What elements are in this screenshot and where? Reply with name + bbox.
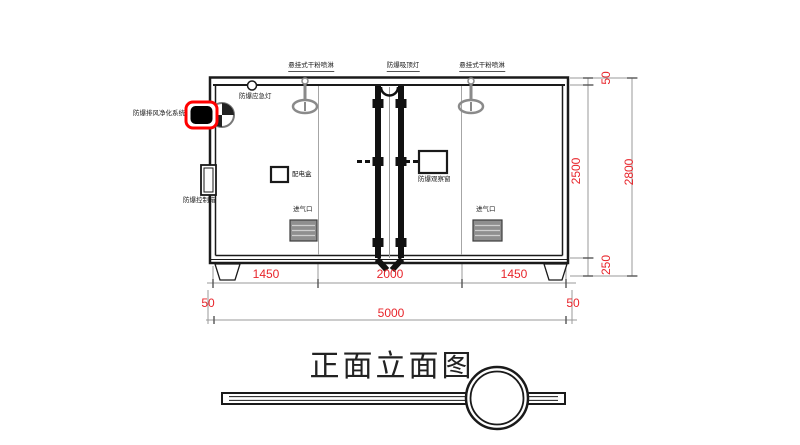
air-vent-left xyxy=(290,220,317,241)
air-vent-right xyxy=(473,220,502,241)
control-box-label: 防爆控制箱 xyxy=(183,198,216,205)
dim-base-height: 250 xyxy=(600,255,612,275)
air-inlet-label-left: 进气口 xyxy=(293,207,313,214)
emergency-light-label: 防爆应急灯 xyxy=(239,94,272,101)
dim-wall-right: 50 xyxy=(566,297,579,309)
observation-window-outline xyxy=(419,151,447,173)
foot-right xyxy=(544,264,567,280)
power-box-label: 配电盒 xyxy=(292,172,312,179)
dim-clear-height: 2500 xyxy=(570,158,582,185)
foot-left xyxy=(215,264,240,280)
emergency-light-icon xyxy=(248,81,257,90)
power-box-outline xyxy=(271,167,288,182)
sprinkler-label-right: 悬挂式干粉喷淋 xyxy=(459,63,505,72)
section-symbol-circle xyxy=(466,367,528,429)
sprinkler-label-left: 悬挂式干粉喷淋 xyxy=(288,63,334,72)
purifier-highlight-box xyxy=(186,102,217,128)
control-box-outline xyxy=(201,165,216,195)
air-inlet-label-right: 进气口 xyxy=(476,207,496,214)
observation-window-label: 防爆观察窗 xyxy=(418,177,451,184)
purification-system-label: 防爆排风净化系统 xyxy=(133,111,185,118)
dim-overall-width: 5000 xyxy=(378,307,405,319)
dim-roof-thickness: 50 xyxy=(600,71,612,84)
elevation-drawing-canvas: 悬挂式干粉喷淋 防爆吸顶灯 悬挂式干粉喷淋 防爆应急灯 防爆排风净化系统 防爆控… xyxy=(0,0,800,445)
dim-bay-left: 1450 xyxy=(253,268,280,280)
dim-bay-center: 2000 xyxy=(377,268,404,280)
drawing-title: 正面立面图 xyxy=(310,352,475,382)
dim-bay-right: 1450 xyxy=(501,268,528,280)
ceiling-light-label: 防爆吸顶灯 xyxy=(387,63,420,72)
dim-wall-left: 50 xyxy=(201,297,214,309)
dim-overall-height: 2800 xyxy=(623,159,635,186)
